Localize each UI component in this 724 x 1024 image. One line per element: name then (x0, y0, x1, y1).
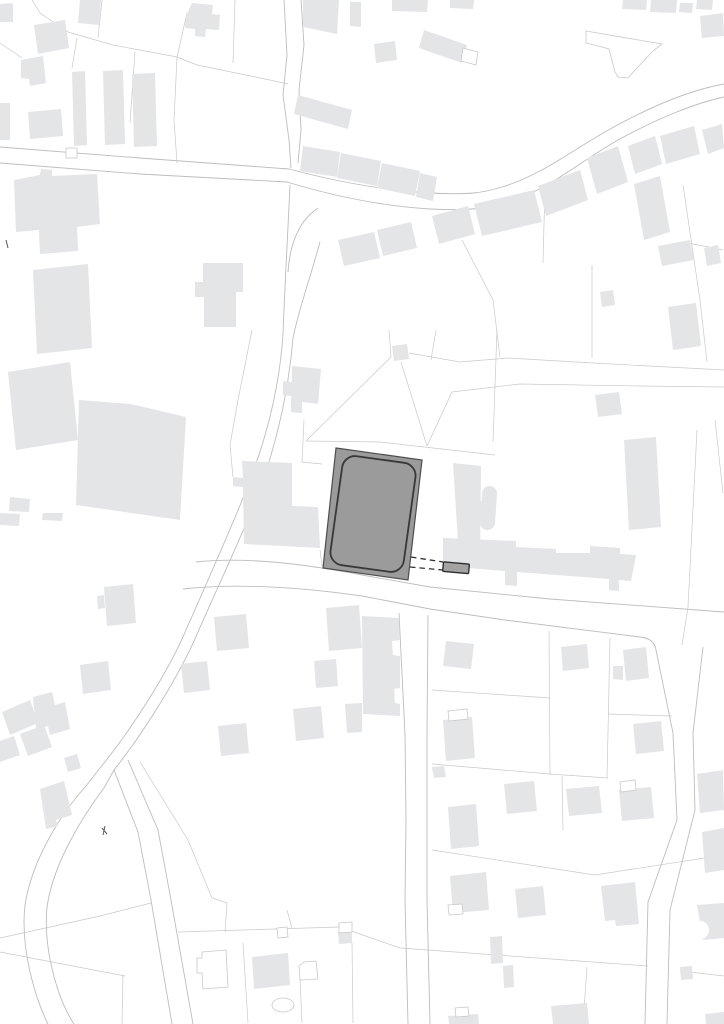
building-footprint (702, 124, 724, 154)
building-footprint (658, 240, 694, 266)
highlighted-building (323, 448, 422, 580)
building-footprint (443, 717, 475, 761)
parcel-line (225, 903, 227, 932)
parcel-line (607, 638, 610, 778)
building-footprint (450, 0, 474, 9)
building-footprint (9, 497, 30, 512)
building-footprint (76, 400, 186, 520)
parcel-line (562, 776, 563, 830)
building-footprint (704, 245, 721, 266)
building-footprint (504, 781, 537, 814)
outlined-structure (272, 998, 294, 1012)
building-footprint (80, 661, 111, 694)
parcel-line (306, 441, 495, 455)
parcel-line (140, 762, 227, 903)
building-footprint (195, 263, 243, 327)
parcel-line (682, 430, 697, 645)
site-plan-drawing (0, 0, 724, 1024)
parcel-line (432, 764, 608, 778)
building-footprint (619, 787, 654, 821)
parcel-line (174, 57, 177, 163)
building-footprint (97, 595, 105, 609)
building-footprint (377, 163, 420, 196)
building-footprint (515, 886, 546, 918)
building-footprint (561, 644, 589, 671)
road-line (128, 760, 193, 1024)
building-footprint (64, 754, 81, 772)
parcel-line (178, 927, 648, 966)
building-footprint (345, 703, 362, 733)
parcel-line (177, 13, 187, 57)
building-footprint (338, 232, 380, 266)
parcel-line (431, 330, 436, 360)
building-footprint (0, 736, 20, 762)
building-footprint (362, 616, 400, 716)
building-footprint (551, 1003, 589, 1024)
parcel-line (389, 330, 391, 357)
parcel-line (320, 550, 322, 566)
parcel-line (287, 910, 292, 928)
building-footprint (702, 828, 724, 873)
building-footprint (374, 41, 397, 63)
parcel-line (432, 850, 724, 875)
building-footprint (78, 0, 101, 25)
parcel-line (432, 690, 550, 698)
building-footprint (634, 176, 670, 240)
parcel-line (409, 353, 724, 370)
building-footprint (233, 461, 320, 548)
annex-building (443, 562, 470, 574)
building-footprint (566, 786, 602, 816)
building-footprint (314, 659, 338, 688)
parcel-line (0, 903, 151, 938)
dashed-connector (411, 557, 443, 562)
building-footprint (624, 437, 661, 530)
outlined-structure (197, 950, 228, 989)
building-footprint (474, 190, 542, 236)
outlined-structure (299, 961, 318, 980)
building-footprint (293, 706, 324, 741)
building-footprint (595, 392, 622, 417)
parcel-line (493, 330, 497, 442)
building-footprint (103, 70, 125, 145)
building-footprint (650, 0, 677, 13)
building-footprint (622, 0, 647, 10)
building-footprint (42, 513, 63, 521)
site-plan-page (0, 0, 724, 1024)
outlined-structure (586, 31, 662, 78)
parcel-line (302, 420, 322, 464)
building-footprint (538, 170, 588, 216)
building-footprint (432, 766, 446, 778)
building-footprint (587, 146, 628, 194)
parcel-line (0, 952, 125, 976)
building-footprint (503, 965, 514, 988)
parcel-line (715, 420, 723, 493)
parcel-line (401, 362, 427, 446)
building-footprint (443, 641, 474, 669)
building-footprint (392, 344, 409, 361)
parcel-line (352, 943, 353, 1023)
building-footprint (337, 153, 381, 186)
survey-mark (6, 240, 8, 248)
road-line (288, 208, 318, 272)
building-footprint (680, 966, 693, 980)
building-footprint (218, 723, 249, 756)
road-line (183, 586, 656, 650)
outlined-structure (455, 1007, 469, 1017)
parcel-line (462, 240, 500, 357)
outlined-structure (277, 927, 288, 938)
dashed-connector (410, 567, 443, 570)
building-footprint (613, 666, 623, 680)
building-footprint (490, 936, 503, 964)
building-footprint (33, 264, 92, 354)
building-footprint (700, 13, 724, 38)
parcel-line (233, 0, 235, 63)
building-footprint (20, 725, 52, 756)
building-footprint (600, 290, 615, 307)
parcel-line (0, 43, 22, 58)
building-footprint (443, 538, 636, 591)
building-footprint (679, 3, 693, 13)
building-footprint (601, 882, 639, 926)
building-footprint (294, 95, 352, 129)
building-footprint (696, 0, 713, 10)
building-footprint (40, 781, 72, 829)
building-footprint (416, 173, 437, 201)
road-line (399, 613, 408, 1024)
parcel-line (230, 330, 252, 477)
parcel-line (72, 38, 77, 68)
building-footprint (350, 2, 361, 27)
parcel-line (300, 980, 302, 1023)
outlined-structure (66, 148, 77, 158)
outlined-structure (339, 922, 352, 933)
building-footprint (0, 3, 13, 22)
building-footprint (377, 222, 417, 256)
building-footprint (72, 71, 87, 146)
building-footprint (300, 146, 340, 177)
outlined-structure (448, 904, 463, 915)
building-footprint (628, 136, 662, 174)
parcel-line (549, 631, 550, 775)
parcel-line (427, 384, 724, 446)
outlined-structure (620, 780, 636, 792)
parcel-line (243, 943, 248, 1023)
building-footprint (214, 614, 249, 651)
building-footprint (0, 103, 10, 140)
parcel-line (32, 0, 288, 84)
building-footprint (633, 721, 664, 754)
outlined-structure (691, 921, 709, 939)
building-footprint (181, 661, 210, 693)
building-footprint (303, 0, 339, 34)
building-footprint (8, 362, 78, 450)
building-footprint (432, 206, 475, 244)
building-footprint (14, 169, 100, 254)
outlined-structure (448, 709, 468, 721)
building-footprint (252, 953, 290, 989)
parcel-line (608, 714, 672, 716)
building-footprint (185, 3, 220, 37)
building-footprint (623, 647, 649, 681)
building-footprint (132, 73, 157, 147)
building-footprint (668, 303, 701, 350)
building-footprint (21, 56, 46, 86)
building-footprint (34, 20, 69, 54)
parcel-line (122, 975, 123, 1024)
road-line (645, 650, 677, 1024)
building-footprint (660, 126, 700, 164)
road-line (427, 615, 430, 1024)
building-footprint (0, 513, 20, 526)
building-footprint (104, 584, 136, 626)
building-footprint (28, 109, 63, 139)
building-footprint (419, 30, 467, 63)
building-footprint (326, 605, 362, 651)
building-footprint (480, 486, 497, 530)
outlined-structure (461, 48, 478, 65)
building-footprint (697, 770, 724, 813)
road-line (0, 147, 289, 169)
building-footprint (448, 804, 479, 849)
building-footprint (472, 500, 482, 513)
building-footprint (705, 1012, 724, 1024)
building-footprint (392, 0, 428, 12)
